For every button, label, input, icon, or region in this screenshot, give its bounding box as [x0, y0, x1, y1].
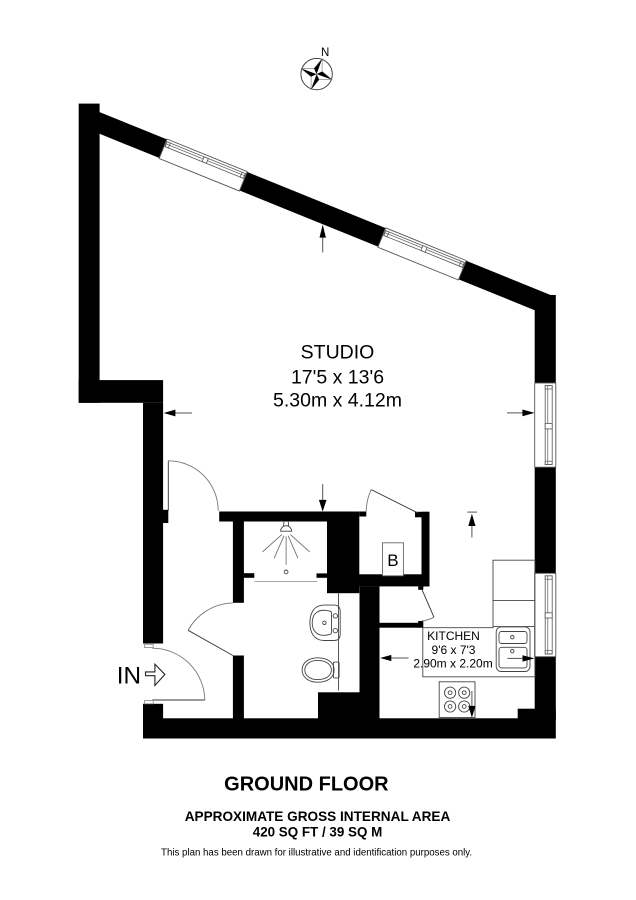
svg-text:KITCHEN: KITCHEN: [427, 629, 480, 643]
svg-text:IN: IN: [117, 663, 141, 690]
svg-text:This plan has been drawn for i: This plan has been drawn for illustrativ…: [161, 847, 472, 858]
svg-text:GROUND FLOOR: GROUND FLOOR: [224, 774, 389, 796]
svg-text:5.30m x 4.12m: 5.30m x 4.12m: [273, 389, 402, 411]
svg-text:N: N: [321, 47, 329, 59]
svg-text:17'5 x 13'6: 17'5 x 13'6: [291, 367, 384, 389]
svg-text:2.90m x 2.20m: 2.90m x 2.20m: [413, 656, 492, 670]
svg-text:APPROXIMATE GROSS INTERNAL ARE: APPROXIMATE GROSS INTERNAL AREA: [185, 809, 451, 824]
svg-text:420 SQ FT / 39 SQ M: 420 SQ FT / 39 SQ M: [253, 824, 383, 839]
svg-text:B: B: [387, 551, 398, 570]
svg-text:9'6 x 7'3: 9'6 x 7'3: [432, 643, 476, 657]
svg-text:STUDIO: STUDIO: [301, 342, 375, 364]
